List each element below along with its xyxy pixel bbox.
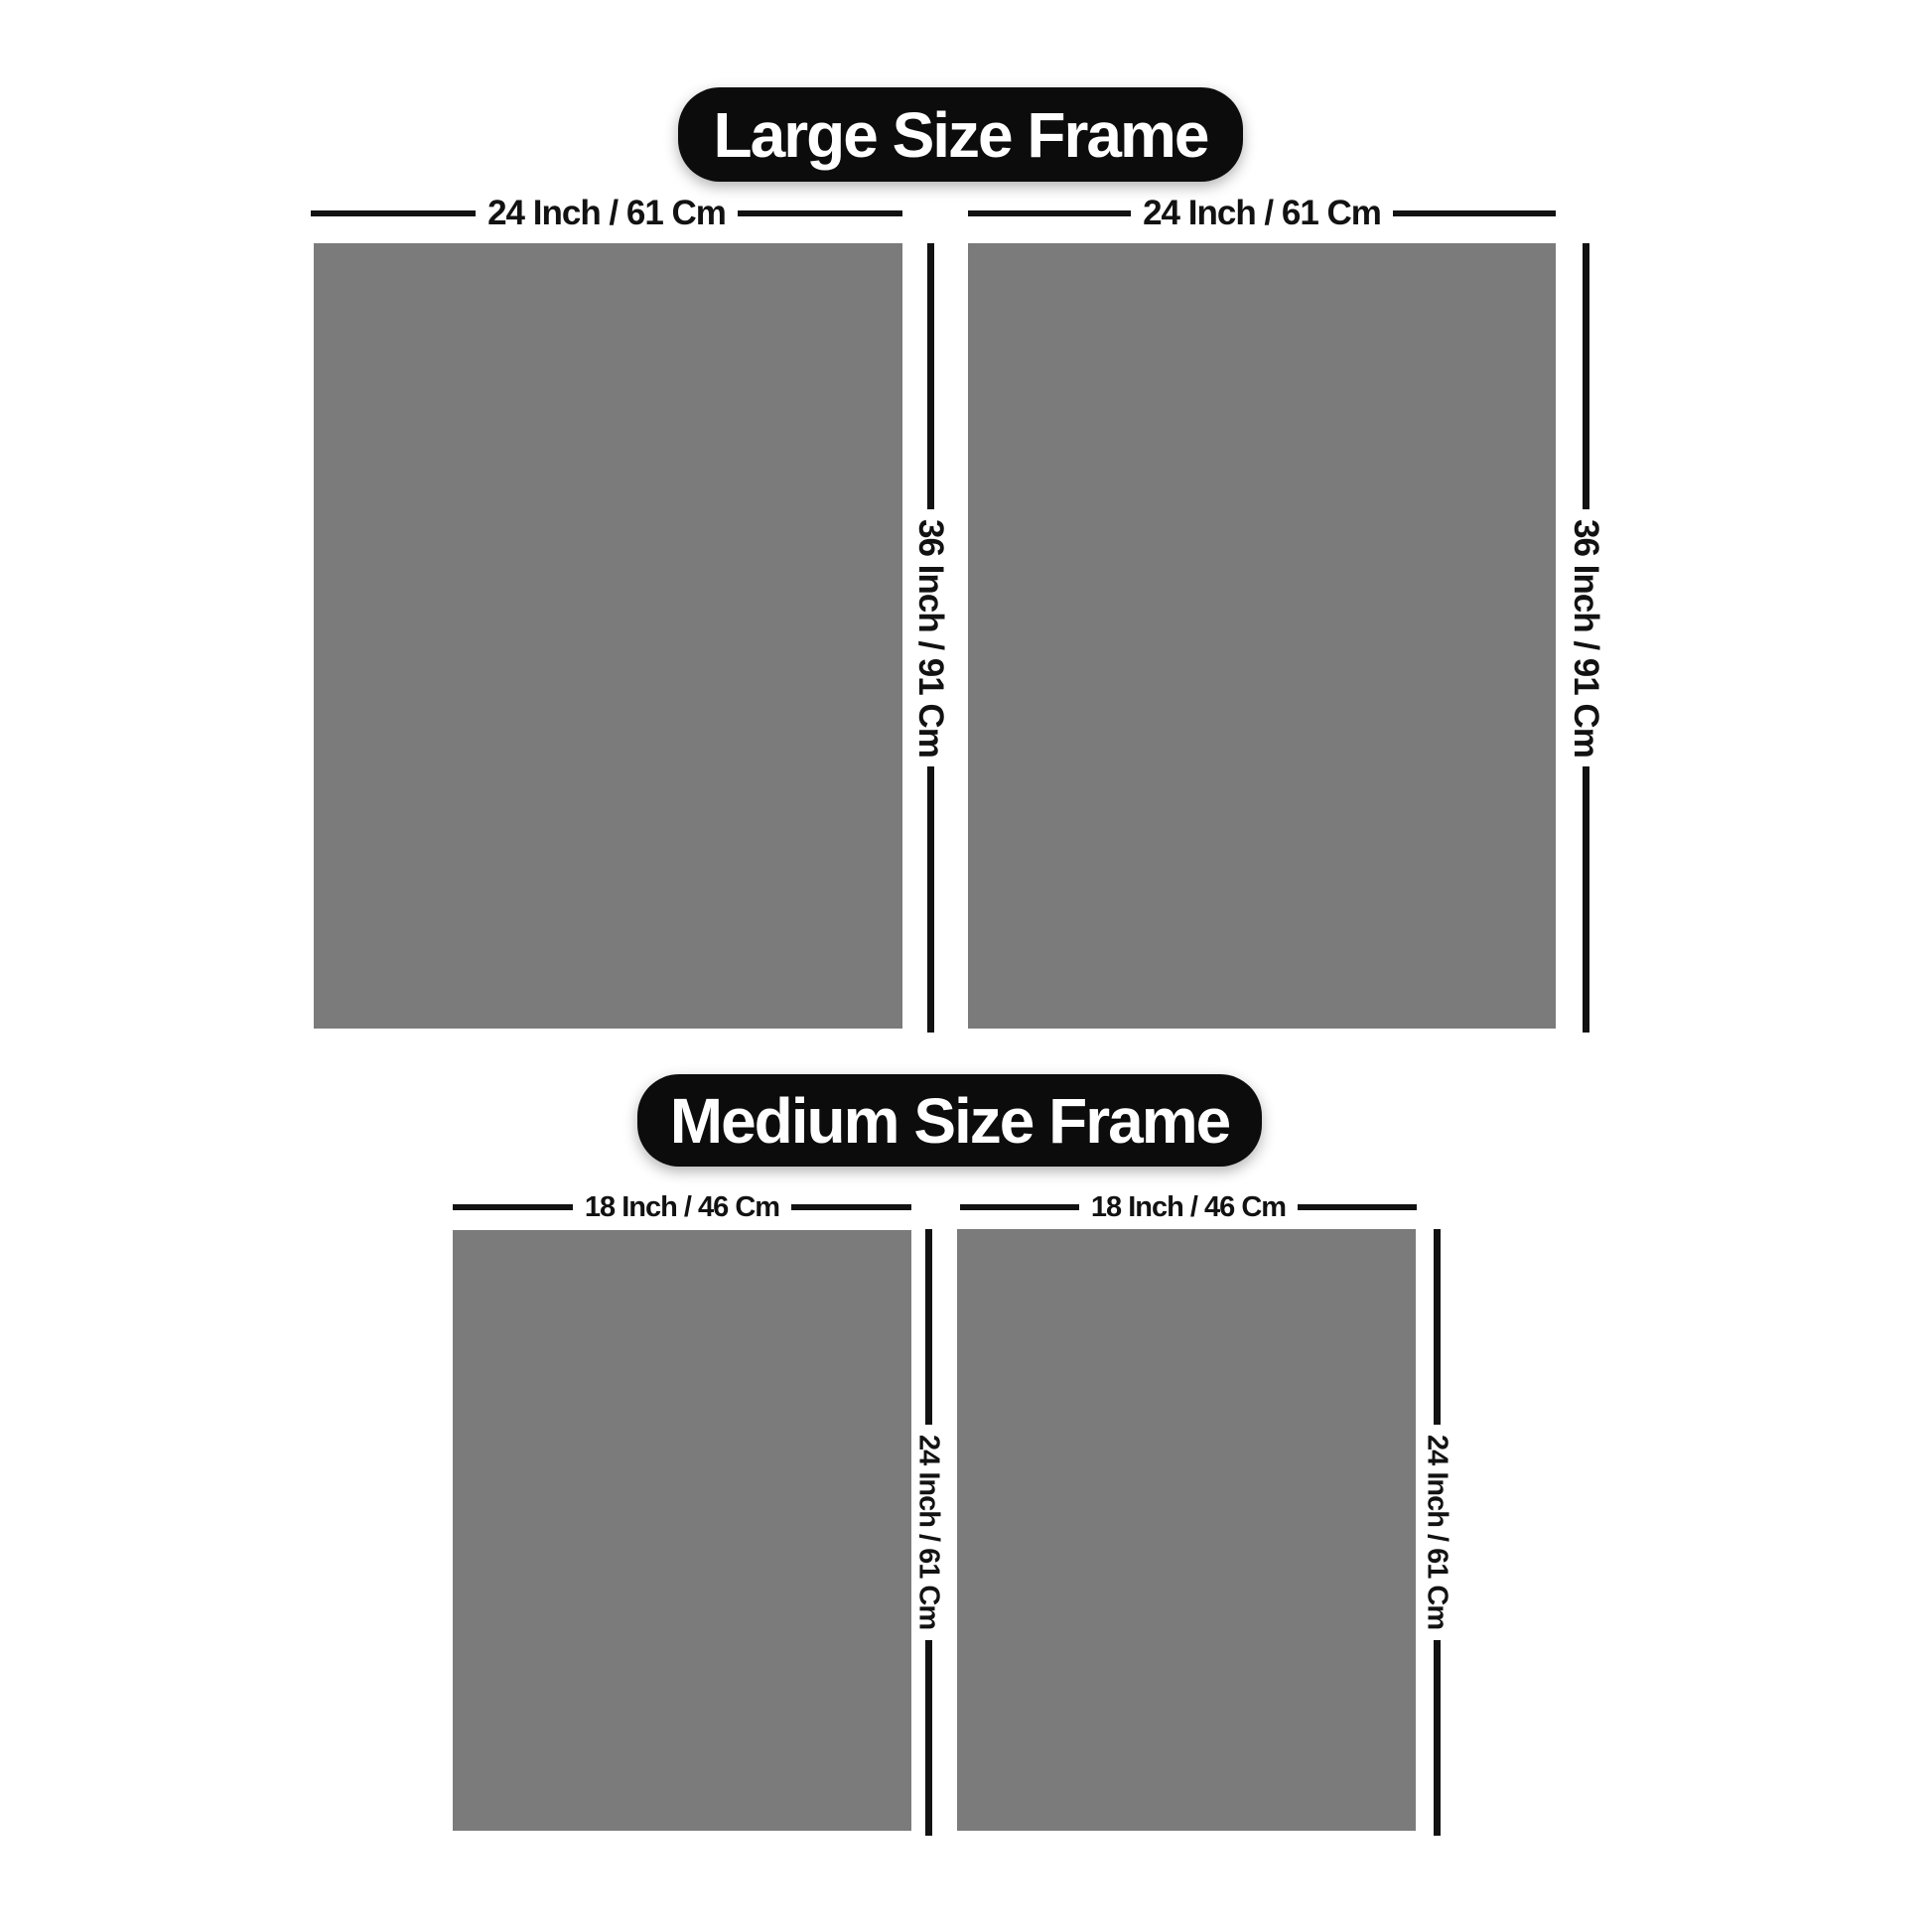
width-dimension-label: 18 Inch / 46 Cm (453, 1183, 911, 1231)
width-dimension-text: 18 Inch / 46 Cm (585, 1191, 779, 1224)
width-dimension-text: 24 Inch / 61 Cm (487, 194, 726, 233)
width-dimension-label: 24 Inch / 61 Cm (311, 190, 902, 237)
dimension-line-bottom (927, 766, 934, 1033)
height-dimension-text: 24 Inch / 61 Cm (912, 1435, 945, 1629)
dimension-line-left (311, 210, 476, 216)
width-dimension-label: 24 Inch / 61 Cm (968, 190, 1556, 237)
dimension-line-right (791, 1204, 911, 1210)
height-dimension-label: 24 Inch / 61 Cm (1407, 1229, 1466, 1836)
dimension-line-bottom (1434, 1640, 1441, 1836)
dimension-line-top (1434, 1229, 1441, 1425)
dimension-line-left (453, 1204, 573, 1210)
height-dimension-text: 36 Inch / 91 Cm (1566, 519, 1605, 758)
size-guide-canvas: Large Size Frame 24 Inch / 61 Cm 24 Inch… (0, 0, 1932, 1932)
height-dimension-text: 24 Inch / 61 Cm (1421, 1435, 1453, 1629)
frame-preview-large-1 (314, 243, 902, 1029)
dimension-line-top (925, 1229, 932, 1425)
frame-preview-medium-1 (453, 1230, 911, 1831)
dimension-line-right (1393, 210, 1556, 216)
section-title-large: Large Size Frame (678, 87, 1243, 182)
frame-preview-large-2 (968, 243, 1556, 1029)
dimension-line-top (927, 243, 934, 509)
width-dimension-label: 18 Inch / 46 Cm (960, 1183, 1417, 1231)
dimension-line-bottom (1583, 766, 1589, 1033)
dimension-line-left (968, 210, 1131, 216)
width-dimension-text: 24 Inch / 61 Cm (1143, 194, 1381, 233)
dimension-line-left (960, 1204, 1079, 1210)
section-title-medium: Medium Size Frame (637, 1074, 1262, 1167)
dimension-line-right (1298, 1204, 1417, 1210)
dimension-line-top (1583, 243, 1589, 509)
dimension-line-right (738, 210, 902, 216)
width-dimension-text: 18 Inch / 46 Cm (1091, 1191, 1286, 1224)
frame-preview-medium-2 (957, 1229, 1416, 1831)
height-dimension-label: 36 Inch / 91 Cm (1556, 243, 1615, 1033)
dimension-line-bottom (925, 1640, 932, 1836)
height-dimension-label: 24 Inch / 61 Cm (898, 1229, 958, 1836)
height-dimension-label: 36 Inch / 91 Cm (900, 243, 960, 1033)
height-dimension-text: 36 Inch / 91 Cm (910, 519, 950, 758)
